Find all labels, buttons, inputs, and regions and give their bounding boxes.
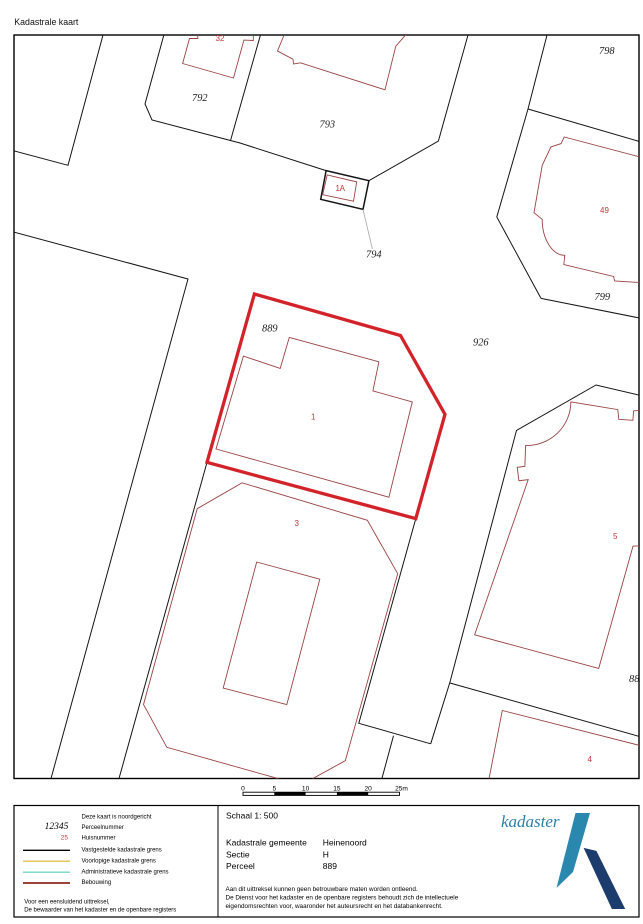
svg-text:3: 3 xyxy=(295,519,300,528)
svg-text:5: 5 xyxy=(272,786,276,793)
svg-text:4: 4 xyxy=(588,755,593,764)
svg-text:793: 793 xyxy=(320,120,336,131)
svg-text:926: 926 xyxy=(473,338,489,349)
svg-text:Perceelnummer: Perceelnummer xyxy=(82,825,124,831)
svg-text:25: 25 xyxy=(61,834,69,841)
svg-text:Huisnummer: Huisnummer xyxy=(82,836,116,842)
svg-text:Kadastrale gemeente: Kadastrale gemeente xyxy=(226,838,307,848)
svg-text:eigendomsrechten voor, waarond: eigendomsrechten voor, waaronder het aut… xyxy=(226,903,443,910)
svg-text:15: 15 xyxy=(333,786,341,793)
svg-text:De bewaarder van het kadaster: De bewaarder van het kadaster en de open… xyxy=(24,907,176,913)
svg-text:Voor een eensluidend uittrekse: Voor een eensluidend uittreksel, xyxy=(24,899,110,905)
svg-text:kadaster: kadaster xyxy=(501,812,560,831)
svg-text:49: 49 xyxy=(600,206,609,215)
svg-text:H: H xyxy=(323,850,329,860)
svg-text:1: 1 xyxy=(311,413,316,422)
svg-text:Kadastrale kaart: Kadastrale kaart xyxy=(14,17,79,27)
svg-text:0: 0 xyxy=(241,786,245,793)
svg-text:Perceel: Perceel xyxy=(226,861,255,871)
svg-text:De Dienst voor het kadaster en: De Dienst voor het kadaster en de openba… xyxy=(226,895,459,902)
svg-text:798: 798 xyxy=(599,46,615,57)
svg-text:5: 5 xyxy=(613,532,618,541)
svg-text:20: 20 xyxy=(365,786,373,793)
svg-text:Administratieve kadastrale gre: Administratieve kadastrale grens xyxy=(82,869,169,875)
svg-text:Bebouwing: Bebouwing xyxy=(82,880,112,886)
svg-text:32: 32 xyxy=(216,34,225,43)
svg-text:12345: 12345 xyxy=(45,822,69,832)
svg-text:10: 10 xyxy=(302,786,310,793)
svg-text:889: 889 xyxy=(262,324,278,335)
svg-text:Aan dit uittreksel kunnen geen: Aan dit uittreksel kunnen geen betrouwba… xyxy=(226,886,418,893)
svg-text:799: 799 xyxy=(595,292,611,303)
svg-text:25m: 25m xyxy=(395,786,408,793)
svg-text:88: 88 xyxy=(629,674,640,685)
svg-text:792: 792 xyxy=(192,93,208,104)
svg-text:1A: 1A xyxy=(336,184,346,193)
svg-text:Voorlopige kadastrale grens: Voorlopige kadastrale grens xyxy=(82,858,156,864)
svg-text:Deze kaart is noordgericht: Deze kaart is noordgericht xyxy=(82,814,152,820)
svg-text:Heinenoord: Heinenoord xyxy=(323,838,367,848)
svg-text:794: 794 xyxy=(366,250,382,261)
svg-text:Vastgestelde kadastrale grens: Vastgestelde kadastrale grens xyxy=(82,848,162,854)
svg-text:Schaal 1: 500: Schaal 1: 500 xyxy=(226,811,278,821)
svg-text:889: 889 xyxy=(323,861,337,871)
svg-text:Sectie: Sectie xyxy=(226,850,250,860)
